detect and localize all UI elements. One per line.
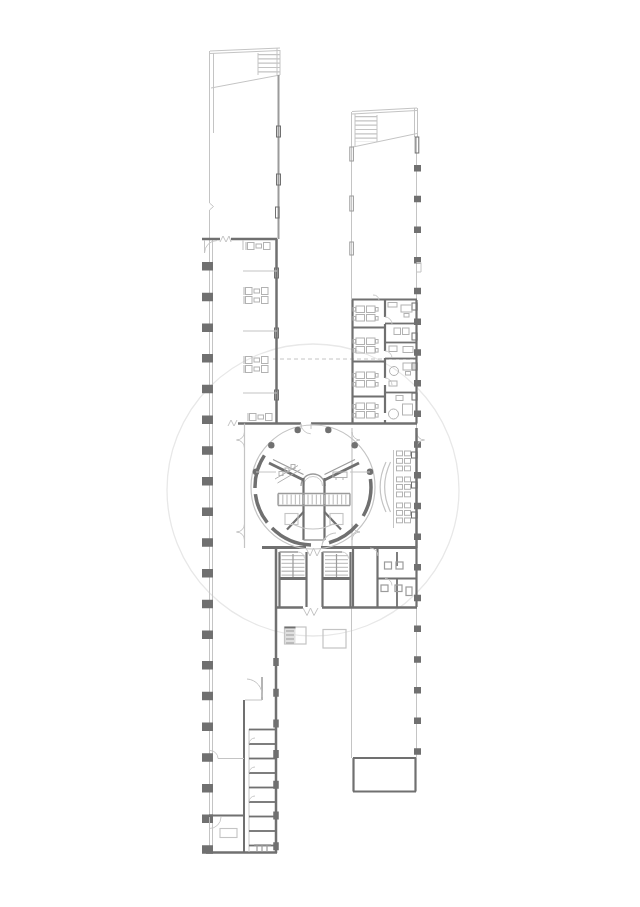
left-wing [202, 48, 281, 855]
double-door-icon [220, 236, 231, 242]
left-wing-rooms [243, 240, 277, 421]
desk-row [244, 296, 268, 304]
right-wing-canopy [352, 108, 418, 147]
room-stack [209, 677, 276, 852]
desk-row [244, 287, 268, 295]
offices [352, 295, 417, 424]
seat-rows [397, 503, 411, 523]
desk-row [248, 413, 272, 421]
table [220, 829, 237, 838]
floor-plan-canvas: Architectural floor plan [0, 0, 640, 907]
desk-pod [353, 372, 378, 387]
wall-break-icon [228, 420, 237, 426]
stair-treads [293, 554, 337, 578]
annex-seating [380, 450, 410, 528]
escalators [278, 494, 350, 506]
door-tab [417, 263, 422, 273]
rotunda-ring-walls [255, 455, 371, 545]
office-furniture [388, 303, 414, 420]
desk-row [244, 365, 268, 373]
radial-walls [256, 460, 370, 530]
desk-row [246, 242, 270, 250]
door-swing-icons [249, 738, 255, 802]
end-room [353, 758, 416, 792]
core-shaft [304, 478, 325, 540]
stair-block [276, 548, 417, 616]
door-swing-icon [204, 240, 217, 253]
right-wing [350, 108, 421, 792]
columns [253, 427, 373, 475]
door-swing-icon [247, 679, 262, 697]
desk-pod [353, 306, 378, 321]
central-hall [228, 420, 425, 556]
tables [285, 627, 347, 648]
left-wing-canopy [210, 48, 281, 210]
seat-rows [397, 477, 411, 497]
seat-rows [397, 451, 411, 471]
rotunda [251, 425, 375, 549]
floor-plan-drawing: Architectural floor plan [0, 0, 640, 907]
double-door-icon [303, 608, 318, 616]
desk-pod [353, 403, 378, 418]
left-wing-shell [202, 75, 281, 855]
